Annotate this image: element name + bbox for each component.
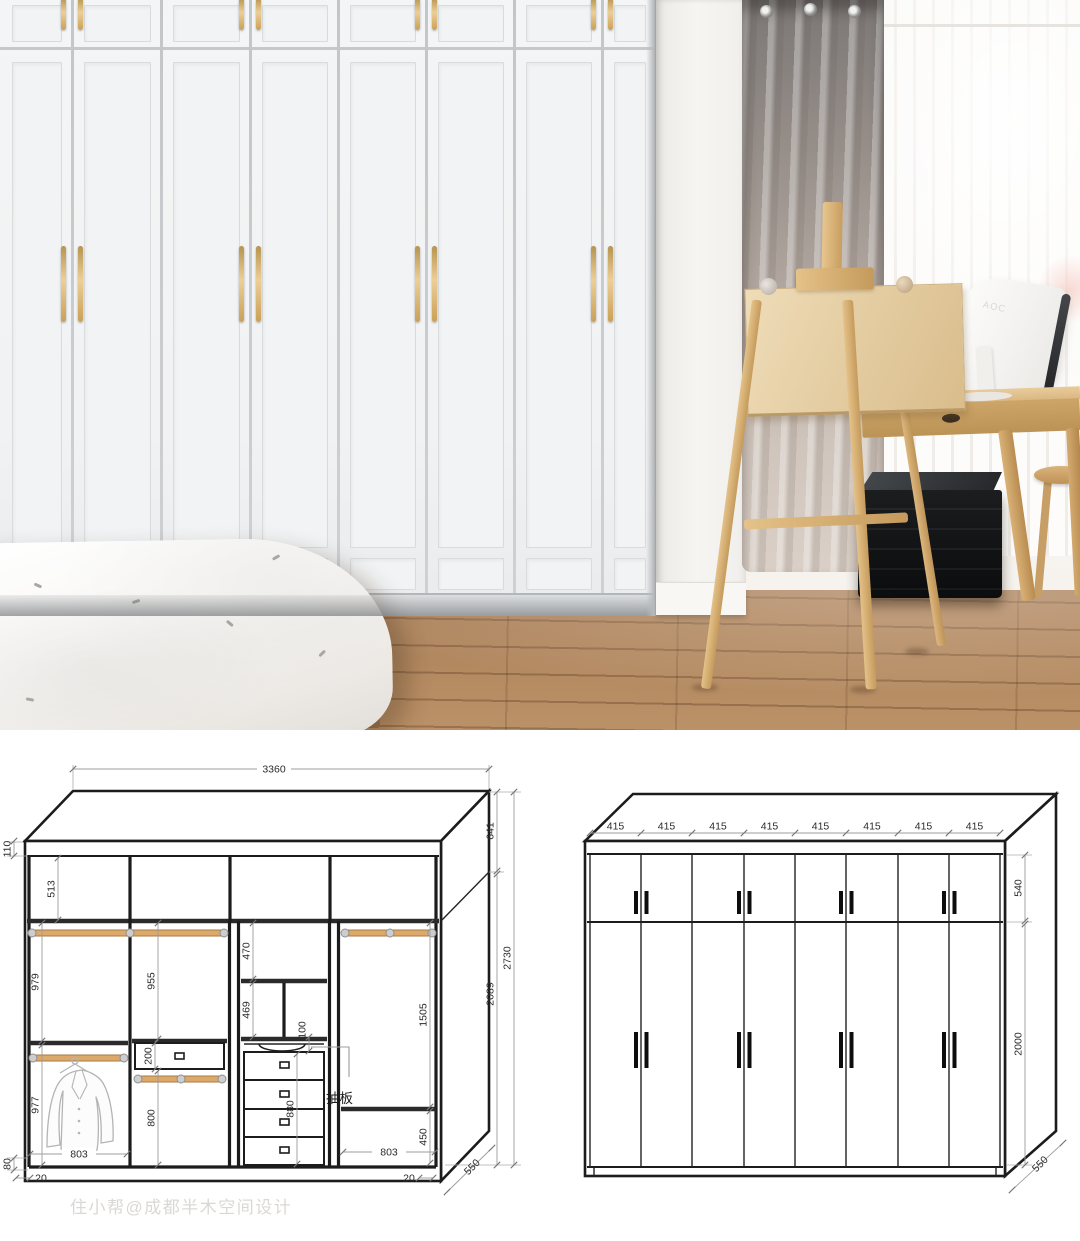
- door-gap: [601, 0, 604, 594]
- wardrobe-door-lower-panel: [614, 558, 646, 590]
- wardrobe-door-panel: [438, 62, 504, 548]
- dim-door-width-5: 415: [812, 821, 830, 833]
- dim-col4-bottom: 450: [418, 1128, 430, 1146]
- wardrobe-handle: [78, 0, 83, 30]
- dim-col3-top: 470: [241, 942, 253, 960]
- wardrobe-upper-door-panel: [350, 5, 416, 42]
- door-gap: [71, 0, 74, 594]
- dim-door-width-2: 415: [658, 821, 676, 833]
- dim-overall-width: 3360: [262, 764, 286, 776]
- dim-body-height: 2089: [485, 982, 497, 1006]
- easel-clamp: [796, 267, 874, 290]
- wardrobe-photo: [0, 0, 656, 616]
- wardrobe-door-panel: [262, 62, 328, 548]
- cabinet-top-face: [585, 794, 1056, 841]
- dim-col1-lower: 977: [30, 1096, 42, 1114]
- dim-pullout-gap: 100: [297, 1021, 309, 1039]
- dim-top-row-height: 513: [46, 880, 58, 898]
- wardrobe-handle: [256, 246, 261, 322]
- dim-plinth: 80: [2, 1158, 14, 1170]
- cabinet-side-face: [1005, 794, 1056, 1176]
- wardrobe-upper-door-panel: [84, 5, 151, 42]
- wardrobe-upper-door-panel: [614, 5, 646, 42]
- dim-crown-height: 110: [2, 840, 14, 857]
- dim-col1-upper: 979: [30, 973, 42, 991]
- wardrobe-drawings: 抽板: [0, 741, 1080, 1241]
- wardrobe-door-panel: [350, 62, 416, 548]
- cable-hole: [942, 413, 960, 423]
- wardrobe-handle: [61, 0, 66, 30]
- easel-foot-shadow: [905, 648, 929, 655]
- wardrobe-upper-door-panel: [438, 5, 504, 42]
- dim-col3-shelf: 469: [241, 1001, 253, 1019]
- wardrobe-door-panel: [173, 62, 240, 548]
- dim-upper-door-height: 540: [1013, 879, 1025, 897]
- monitor-logo: AOC: [982, 299, 1007, 315]
- bed-duvet: [0, 536, 394, 730]
- wardrobe-front-elevation: [585, 794, 1056, 1176]
- wardrobe-door-panel: [614, 62, 646, 548]
- wardrobe-handle: [239, 0, 244, 30]
- door-gap: [425, 0, 428, 594]
- wardrobe-upper-door-panel: [12, 5, 62, 42]
- baseboard: [656, 582, 746, 615]
- dim-top-section: 641: [485, 822, 497, 840]
- cabinet-top-face: [25, 791, 489, 841]
- door-gap: [337, 0, 340, 594]
- dim-drawer-stack: 880: [285, 1100, 297, 1118]
- pullout-label: 抽板: [326, 1091, 353, 1106]
- wardrobe-handle: [415, 246, 420, 322]
- dim-col2-upper: 955: [146, 972, 158, 990]
- wardrobe-handle: [591, 246, 596, 322]
- wardrobe-handle: [432, 246, 437, 322]
- wardrobe-handle: [591, 0, 596, 30]
- wardrobe-door-panel: [526, 62, 592, 548]
- wardrobe-door-lower-panel: [438, 558, 504, 590]
- door-gap: [249, 0, 252, 594]
- curtain-grommet: [848, 5, 861, 18]
- wardrobe-upper-door-panel: [262, 5, 328, 42]
- dim-door-width-8: 415: [966, 821, 984, 833]
- dim-col4-hanging: 1505: [418, 1003, 430, 1027]
- dim-door-width-4: 415: [761, 821, 779, 833]
- dim-gap-right: 20: [403, 1173, 415, 1185]
- dim-col2-lower: 800: [146, 1109, 158, 1127]
- wardrobe-upper-door-panel: [173, 5, 240, 42]
- easel-knob: [896, 276, 913, 293]
- wardrobe-upper-door-panel: [526, 5, 592, 42]
- dim-drawer-height: 200: [143, 1047, 155, 1065]
- wardrobe-handle: [608, 246, 613, 322]
- dim-col4-width: 803: [380, 1147, 398, 1159]
- dim-col1-width: 803: [70, 1149, 88, 1161]
- curtain-grommet: [760, 5, 773, 18]
- cabinet-side-face: [441, 791, 489, 1181]
- screenshot-root: AOC: [0, 0, 1080, 1241]
- door-gap: [160, 0, 163, 594]
- watermark: 住小帮@成都半木空间设计: [70, 1193, 292, 1218]
- dim-door-width-3: 415: [709, 821, 727, 833]
- wardrobe-door-panel: [12, 62, 62, 548]
- wardrobe-door-panel: [84, 62, 151, 548]
- wardrobe-handle: [61, 246, 66, 322]
- bedroom-photo: AOC: [0, 0, 1080, 730]
- wardrobe-handle: [78, 246, 83, 322]
- door-gap: [0, 47, 656, 50]
- wardrobe-handle: [608, 0, 613, 30]
- wardrobe-handle: [256, 0, 261, 30]
- wardrobe-door-lower-panel: [526, 558, 592, 590]
- dim-door-width-6: 415: [863, 821, 881, 833]
- easel-knob: [760, 278, 777, 295]
- wardrobe-side-edge: [646, 0, 656, 616]
- wardrobe-handle: [239, 246, 244, 322]
- dim-gap-left: 20: [35, 1173, 47, 1185]
- drawer-knob: [175, 1053, 184, 1059]
- curtain-grommet: [804, 3, 817, 16]
- wardrobe-floor-shadow: [0, 595, 656, 616]
- wardrobe-internal-elevation: 抽板: [7, 765, 521, 1181]
- wardrobe-handle: [432, 0, 437, 30]
- dim-door-width-7: 415: [915, 821, 933, 833]
- door-gap: [513, 0, 516, 594]
- dim-lower-door-height: 2000: [1013, 1032, 1025, 1056]
- dim-total-height: 2730: [502, 946, 514, 970]
- wardrobe-handle: [415, 0, 420, 30]
- dim-door-width-1: 415: [607, 821, 625, 833]
